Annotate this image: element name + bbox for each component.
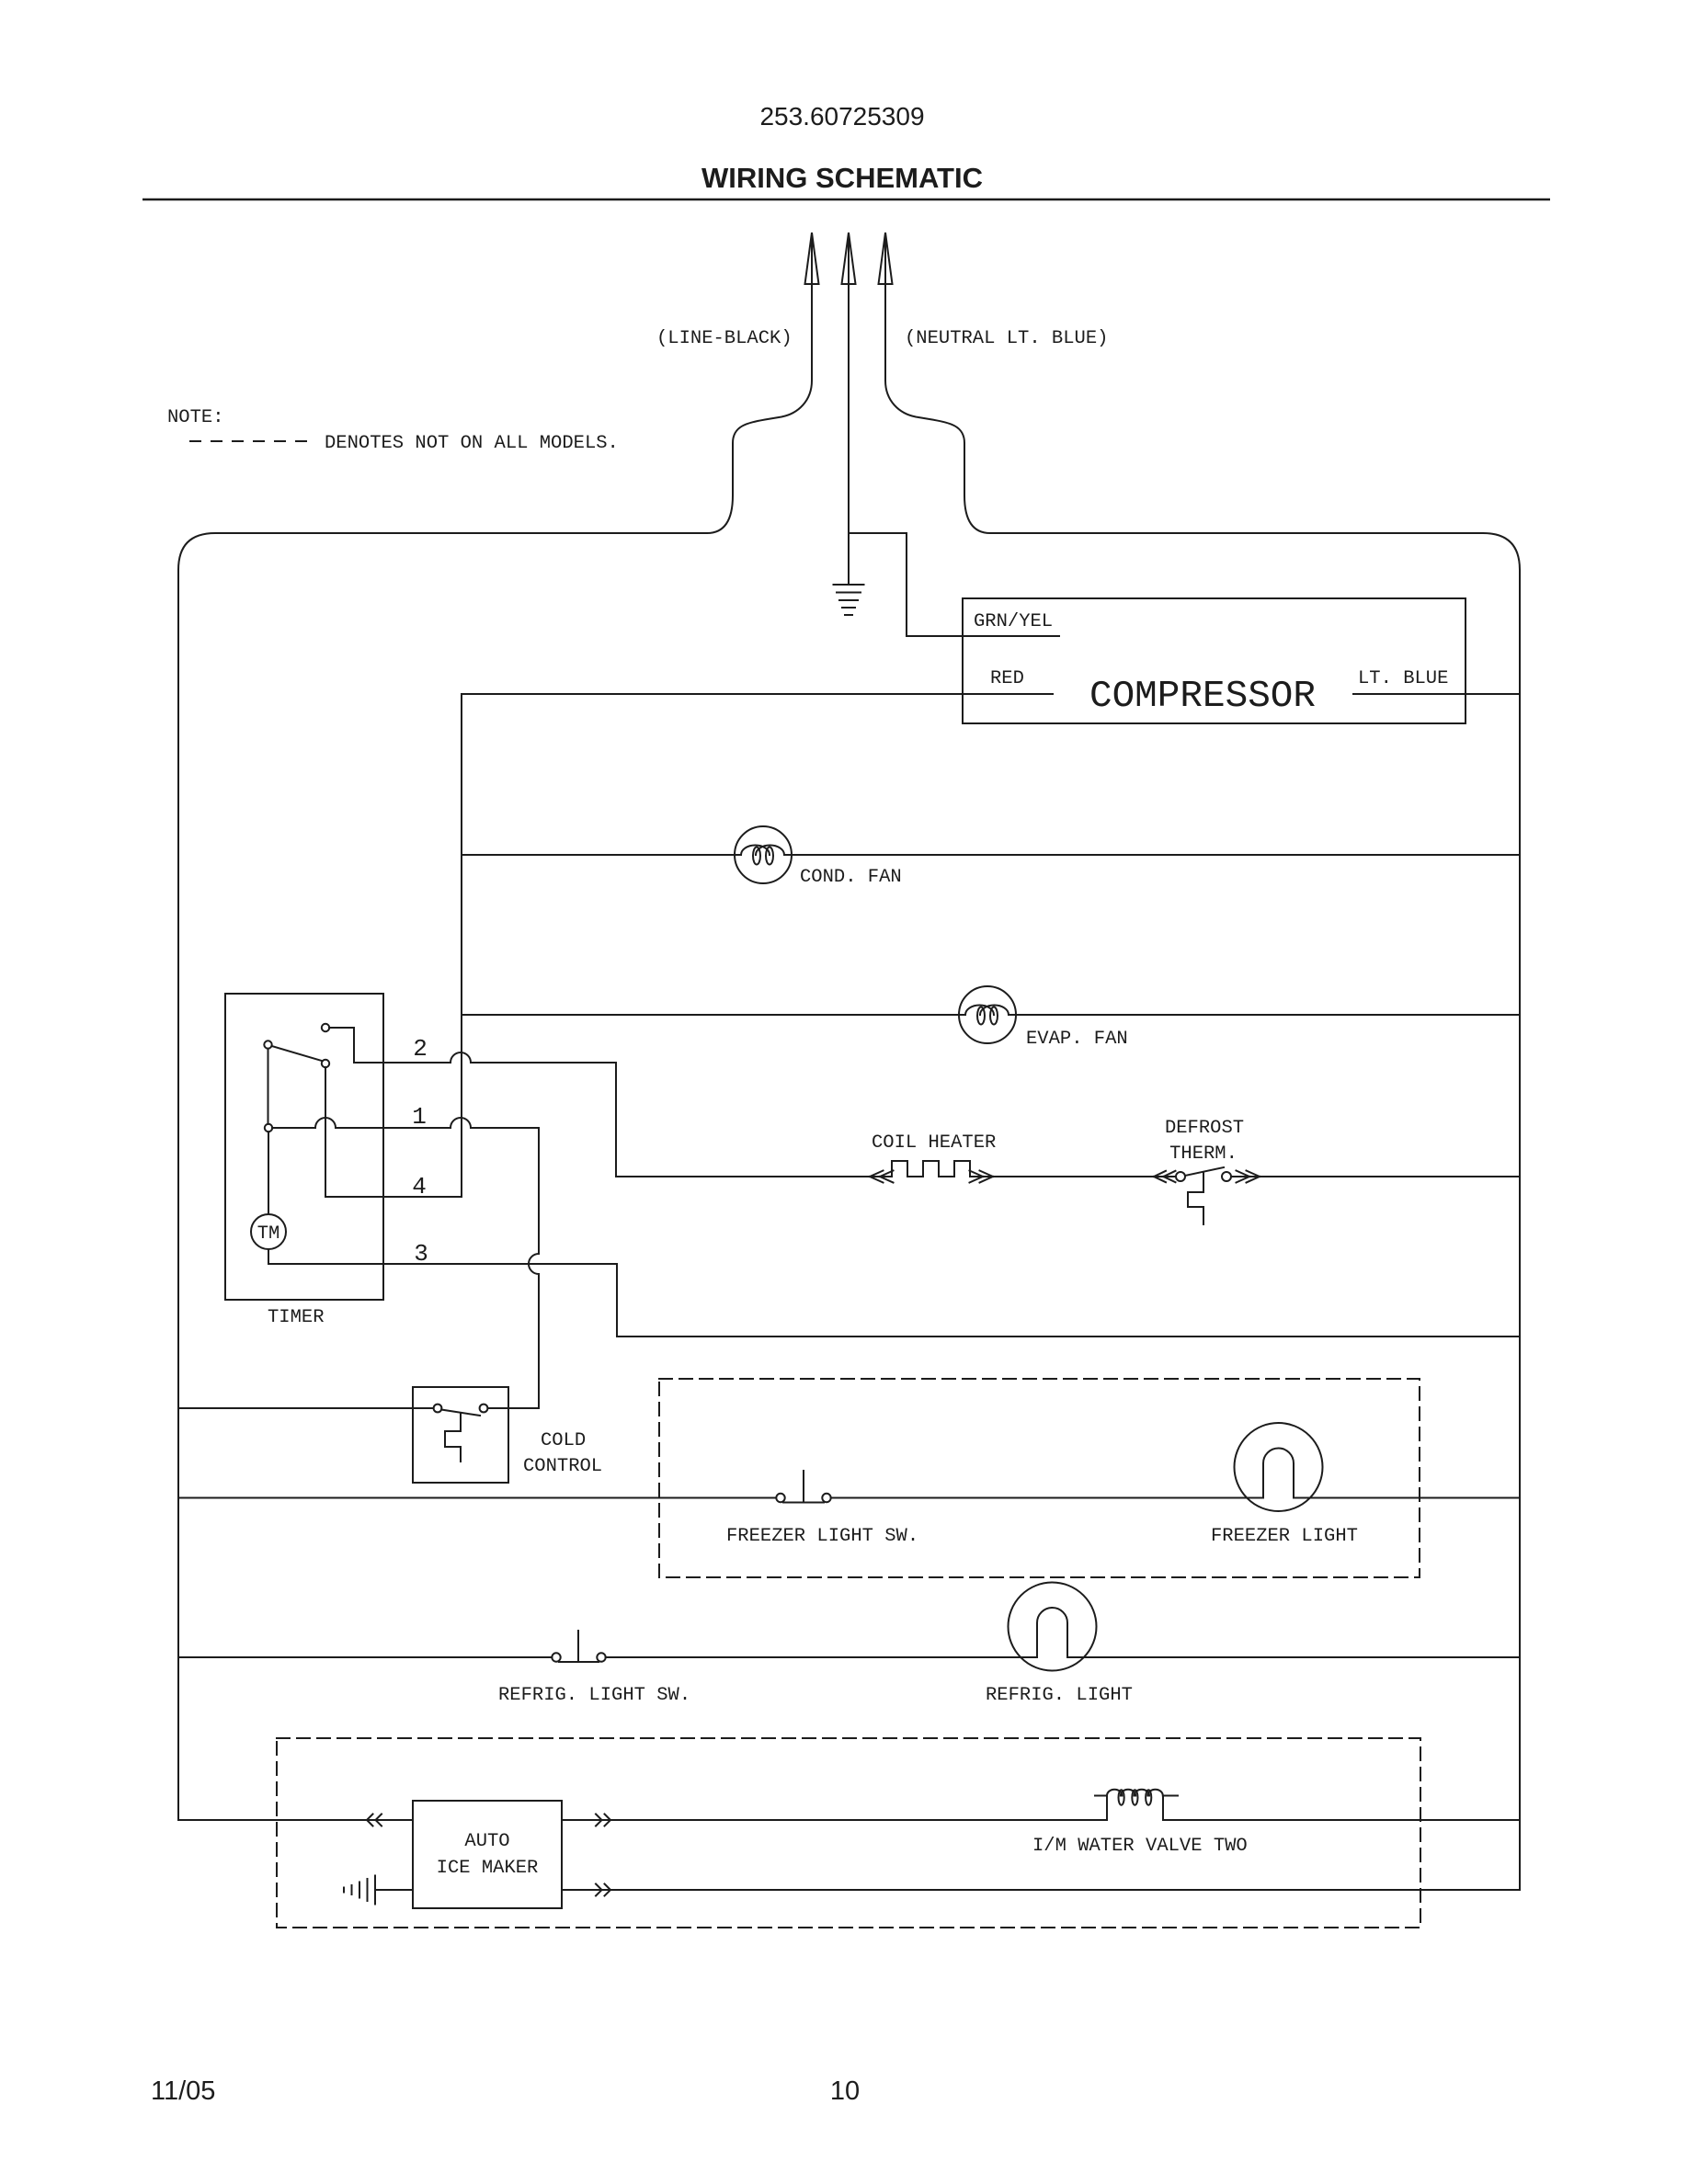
svg-text:TIMER: TIMER	[268, 1307, 325, 1328]
svg-text:EVAP. FAN: EVAP. FAN	[1026, 1029, 1128, 1050]
svg-text:1: 1	[412, 1103, 427, 1131]
svg-text:NOTE:: NOTE:	[167, 407, 224, 428]
svg-text:COIL HEATER: COIL HEATER	[872, 1132, 996, 1154]
svg-text:GRN/YEL: GRN/YEL	[974, 611, 1053, 632]
svg-text:253.60725309: 253.60725309	[759, 102, 924, 131]
svg-text:REFRIG. LIGHT SW.: REFRIG. LIGHT SW.	[498, 1685, 690, 1706]
svg-text:AUTO: AUTO	[464, 1831, 509, 1852]
svg-text:REFRIG. LIGHT: REFRIG. LIGHT	[986, 1685, 1133, 1706]
svg-text:I/M WATER VALVE TWO: I/M WATER VALVE TWO	[1032, 1836, 1248, 1857]
svg-text:4: 4	[412, 1173, 427, 1200]
svg-text:TM: TM	[257, 1223, 280, 1245]
svg-text:LT. BLUE: LT. BLUE	[1358, 668, 1448, 689]
svg-text:CONTROL: CONTROL	[523, 1456, 602, 1477]
svg-text:3: 3	[414, 1240, 428, 1268]
svg-text:2: 2	[413, 1035, 428, 1063]
svg-text:COMPRESSOR: COMPRESSOR	[1089, 676, 1316, 718]
svg-text:FREEZER LIGHT SW.: FREEZER LIGHT SW.	[726, 1526, 918, 1547]
svg-text:COLD: COLD	[541, 1430, 586, 1451]
svg-text:WIRING SCHEMATIC: WIRING SCHEMATIC	[701, 162, 983, 194]
svg-text:DENOTES NOT ON ALL MODELS.: DENOTES NOT ON ALL MODELS.	[325, 433, 619, 454]
svg-text:(LINE-BLACK): (LINE-BLACK)	[656, 328, 793, 349]
svg-text:(NEUTRAL LT. BLUE): (NEUTRAL LT. BLUE)	[905, 328, 1108, 349]
svg-text:ICE MAKER: ICE MAKER	[437, 1858, 539, 1879]
svg-text:DEFROST: DEFROST	[1165, 1118, 1244, 1139]
svg-text:FREEZER LIGHT: FREEZER LIGHT	[1211, 1526, 1358, 1547]
svg-text:11/05: 11/05	[151, 2076, 215, 2106]
svg-text:THERM.: THERM.	[1169, 1143, 1237, 1165]
svg-text:10: 10	[830, 2076, 860, 2106]
svg-text:RED: RED	[990, 668, 1024, 689]
svg-text:COND. FAN: COND. FAN	[800, 867, 902, 888]
